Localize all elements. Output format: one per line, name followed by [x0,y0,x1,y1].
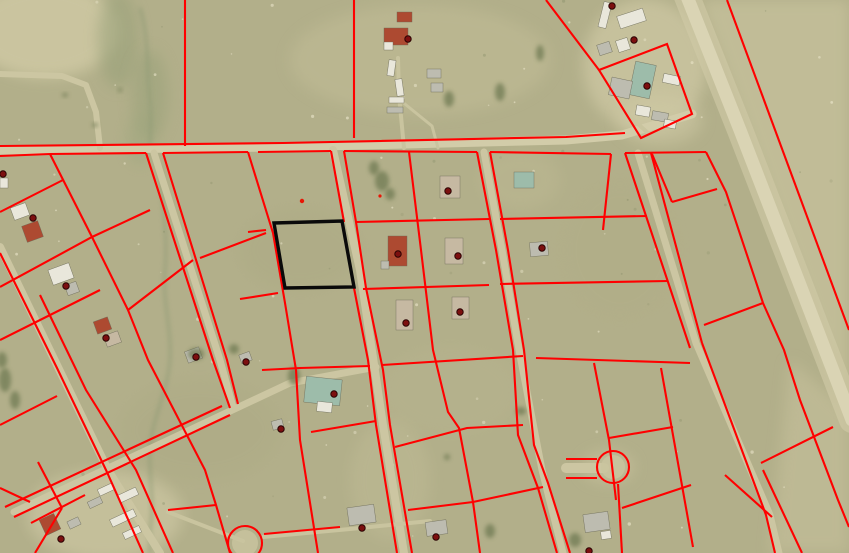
ground-speckle [329,268,331,270]
building [397,12,412,22]
ground-speckle [698,159,701,162]
ground-speckle [407,435,409,437]
ground-speckle [272,295,275,298]
ground-speckle [679,419,682,422]
parcel-boundary-line [258,151,331,152]
parcel-point[interactable] [278,426,284,432]
ground-speckle [568,21,570,23]
parcel-boundary-line [344,151,477,152]
ground-speckle [627,199,629,201]
ground-speckle [412,535,414,537]
parcel-point[interactable] [403,320,409,326]
ground-speckle [520,270,523,273]
ground-speckle [18,139,20,141]
ground-speckle [528,318,530,320]
ground-speckle [644,38,647,41]
ground-speckle [830,101,833,104]
ground-speckle [226,515,228,517]
parcel-point[interactable] [539,245,545,251]
ground-speckle [58,240,60,242]
tree [375,171,389,191]
ground-speckle [724,204,727,207]
parcel-point[interactable] [586,548,592,553]
parcel-point[interactable] [63,283,69,289]
map-canvas[interactable] [0,0,849,553]
ground-speckle [604,233,606,235]
ground-speckle [628,522,631,525]
ground-speckle [499,156,502,159]
building [317,401,333,413]
small-red-mark [300,199,304,203]
parcel-point[interactable] [58,536,64,542]
ground-speckle [598,331,600,333]
building [0,178,8,188]
ground-speckle [450,272,453,275]
ground-speckle [280,242,282,244]
parcel-point[interactable] [405,36,411,42]
ground-speckle [162,502,165,505]
ground-speckle [542,399,544,401]
ground-speckle [95,1,98,4]
tree [385,188,395,200]
tree [288,367,300,385]
tree [444,91,454,107]
ground-speckle [701,116,703,118]
ground-speckle [415,303,418,306]
ground-speckle [271,4,274,7]
parcel-point[interactable] [609,3,615,9]
ground-speckle [288,421,290,423]
ground-speckle [595,430,598,433]
tree [485,524,495,538]
ground-speckle [182,18,184,20]
tree [118,88,122,92]
ground-speckle [482,421,485,424]
parcel-point[interactable] [30,215,36,221]
ground-speckle [353,431,356,434]
ground-speckle [818,56,821,59]
parcel-point[interactable] [644,83,650,89]
ground-speckle [154,73,157,76]
ground-speckle [830,179,833,182]
building [445,238,463,264]
parcel-point[interactable] [433,534,439,540]
ground-speckle [86,106,88,108]
ground-speckle [311,115,314,118]
parcel-point[interactable] [455,253,461,259]
ground-speckle [647,303,649,305]
terrain-patch [290,5,550,115]
ground-speckle [138,243,140,245]
building [427,69,441,78]
ground-speckle [691,61,694,64]
ground-speckle [163,231,165,233]
aerial-parcel-map[interactable] [0,0,849,553]
ground-speckle [634,208,637,211]
small-red-mark [378,194,381,197]
ground-speckle [681,527,683,529]
ground-speckle [707,251,710,254]
ground-speckle [433,160,436,163]
building [381,261,389,269]
tree [569,533,581,547]
ground-speckle [646,156,648,158]
ground-speckle [483,261,486,264]
parcel-boundary-line [163,152,248,153]
tree [536,45,544,61]
parcel-point[interactable] [331,391,337,397]
parcel-point[interactable] [0,171,6,177]
ground-speckle [414,84,417,87]
tree [229,344,239,354]
ground-speckle [380,157,382,159]
ground-speckle [114,84,116,86]
ground-speckle [488,105,490,107]
ground-speckle [55,210,57,212]
building [514,172,534,188]
ground-speckle [231,53,233,55]
ground-speckle [160,272,161,273]
building [600,530,611,539]
ground-speckle [272,495,274,497]
building [389,97,404,103]
ground-speckle [523,68,525,70]
tree [62,93,68,97]
parcel-point[interactable] [103,335,109,341]
ground-speckle [367,405,369,407]
ground-speckle [346,117,349,120]
ground-speckle [765,10,767,12]
tree [369,161,379,175]
building [304,376,343,406]
building [347,504,376,526]
ground-speckle [161,26,163,28]
ground-speckle [325,444,327,446]
building [583,511,610,532]
ground-speckle [124,162,126,164]
ground-speckle [53,174,55,176]
ground-speckle [706,178,708,180]
building [387,107,403,113]
ground-speckle [210,182,212,184]
ground-speckle [323,496,326,499]
ground-speckle [483,54,486,57]
ground-speckle [401,213,404,216]
parcel-point[interactable] [631,37,637,43]
building [635,105,651,117]
ground-speckle [799,171,801,173]
ground-speckle [391,207,393,209]
ground-speckle [514,101,516,103]
terrain-patch [560,180,680,320]
parcel-point[interactable] [243,359,249,365]
parcel-point[interactable] [193,354,199,360]
tree [444,454,450,460]
ground-speckle [476,397,479,400]
building [440,176,460,198]
building [384,42,393,50]
ground-speckle [15,253,18,256]
tree [92,123,98,127]
parcel-point[interactable] [395,251,401,257]
building [452,297,469,319]
tree [495,83,505,101]
parcel-boundary-line [625,152,706,153]
parcel-point[interactable] [457,309,463,315]
ground-speckle [783,486,785,488]
ground-speckle [621,273,623,275]
building [431,83,443,92]
ground-speckle [750,450,753,453]
parcel-point[interactable] [445,188,451,194]
parcel-point[interactable] [359,525,365,531]
ground-speckle [259,360,261,362]
tree [10,391,20,409]
